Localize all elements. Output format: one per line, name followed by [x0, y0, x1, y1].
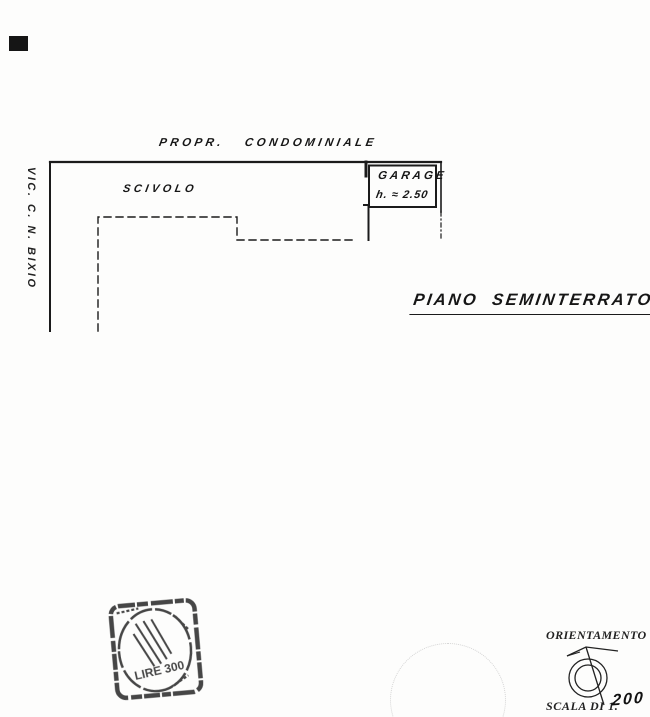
scale-value-handwritten: 200: [612, 689, 646, 710]
stamp-hatching: [132, 618, 172, 668]
wall-below-garage: [364, 205, 369, 240]
dashed-boundary: [98, 217, 357, 331]
garage-height-label: h. ≈ 2.50: [375, 189, 429, 201]
stamp-border: [110, 600, 202, 699]
garage-label: GARAGE: [377, 170, 448, 182]
floor-plan-drawing: [0, 0, 650, 717]
compass-inner-circle: [575, 665, 601, 691]
compass-arrowhead: [567, 647, 618, 656]
scanned-floor-plan-page: VIC. C. N. BIXIO PROPR. CONDOMINIALE SCI…: [0, 0, 650, 717]
scale-label: SCALA DI 1.: [546, 699, 618, 714]
condominium-property-label: PROPR. CONDOMINIALE: [158, 137, 378, 149]
ramp-label: SCIVOLO: [122, 183, 198, 195]
floor-title: PIANO SEMINTERRATO: [409, 291, 650, 315]
stamp-inner-oval: [116, 606, 195, 694]
revenue-stamp: LIRE 300: [104, 594, 211, 706]
